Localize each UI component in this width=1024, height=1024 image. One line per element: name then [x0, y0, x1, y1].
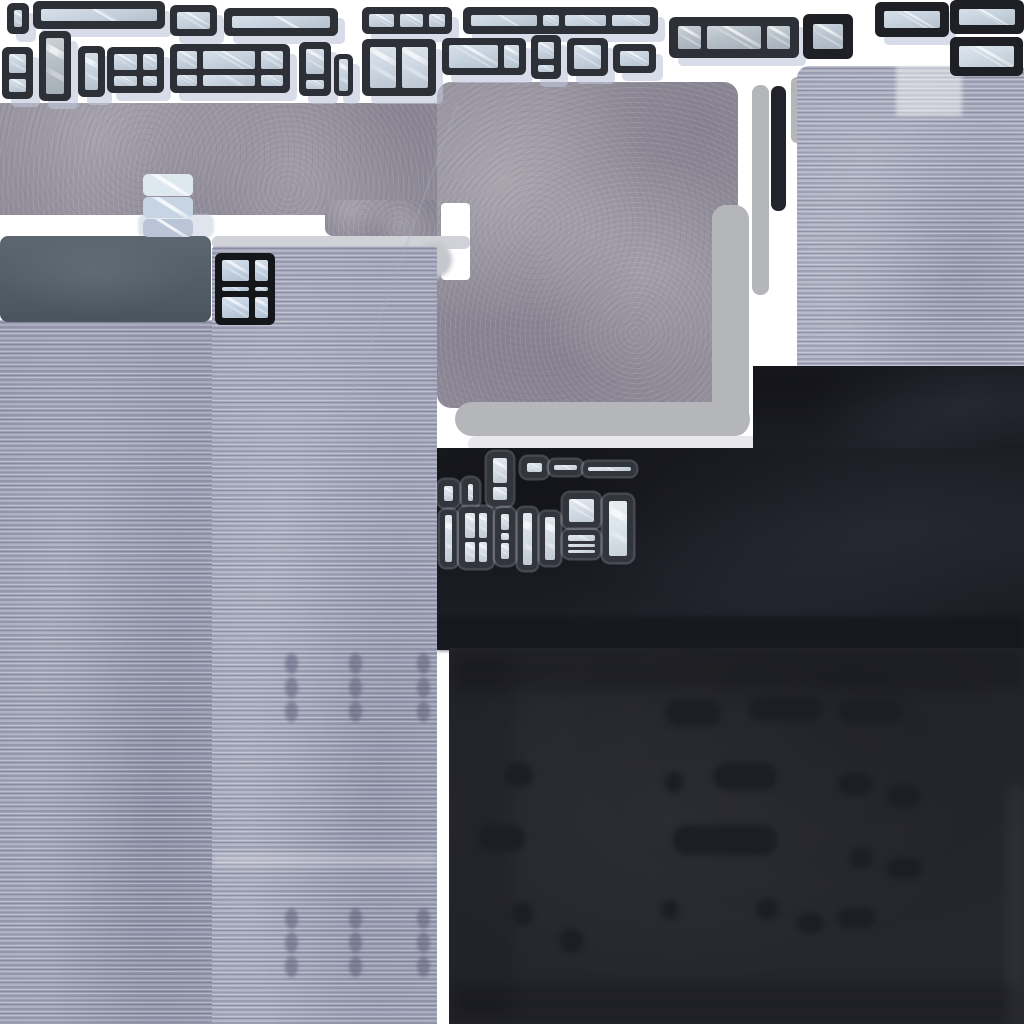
roof-stain-blob	[838, 700, 902, 722]
siding-rivet	[285, 956, 298, 977]
glass-pane	[255, 260, 268, 281]
window-sprite-stacked-2-panes	[306, 49, 324, 89]
glass-pane	[568, 535, 595, 541]
window-sprite-strip-3pane-panes	[369, 14, 445, 27]
window-sprite-wide-2pane-panes	[449, 45, 519, 68]
glass-pane	[306, 49, 324, 74]
glass-pane	[501, 514, 509, 530]
siding-rivet	[285, 701, 298, 722]
window-sprite-wide-2pane	[442, 38, 526, 75]
siding-tower-right	[212, 246, 437, 1024]
window-sprite-grid-3x2-panes	[177, 51, 283, 86]
cluster-window-tall-panes	[609, 501, 627, 556]
glass-pane	[545, 517, 555, 560]
siding-rivet	[417, 653, 430, 674]
cluster-window-strip-a	[549, 460, 582, 475]
cluster-window-strip-b	[583, 462, 636, 476]
roof-shade	[449, 984, 1024, 1024]
siding-rivet	[285, 932, 298, 953]
window-sprite-stacked-3-panes	[538, 42, 554, 72]
chimney-glass-segment	[143, 219, 193, 237]
glass-pane	[527, 463, 542, 472]
glass-pane	[306, 80, 324, 89]
cluster-window-slim-b	[518, 508, 537, 570]
glass-pane	[959, 46, 1014, 67]
roof-texture	[449, 648, 1024, 1024]
glass-pane	[9, 79, 26, 92]
glass-pane	[471, 15, 537, 26]
glass-pane	[402, 47, 428, 88]
siding-highlight-band	[212, 853, 437, 867]
glass-pane	[501, 533, 509, 541]
roof-shade	[1008, 788, 1024, 1024]
window-sprite-black-corner-panes	[959, 9, 1015, 25]
glass-pane	[177, 75, 197, 86]
cluster-window-square-top	[563, 493, 600, 528]
window-sprite-wide	[224, 8, 338, 36]
glass-pane	[177, 12, 210, 29]
window-sprite-square-mid-panes	[574, 45, 601, 69]
glass-pane	[569, 499, 594, 522]
window-sprite-banded	[669, 17, 799, 58]
glass-pane	[41, 9, 157, 21]
siding-rivet	[349, 653, 362, 674]
window-sprite-strip-4pane	[463, 7, 658, 34]
pipe-vertical-thin	[752, 85, 769, 295]
siding-rivet	[285, 908, 298, 929]
rooftop-slate-cap	[0, 236, 211, 322]
cluster-window-tall-split-panes	[493, 458, 507, 500]
cluster-window-triple-stack-panes	[501, 514, 509, 559]
cluster-window-slim-c	[540, 512, 560, 565]
pipe-vertical-wide	[712, 205, 749, 436]
glass-pane	[479, 542, 487, 562]
window-sprite-square-thick-panes	[813, 24, 843, 49]
roof-stain-blob	[797, 913, 823, 933]
window-sprite-black-corner	[950, 0, 1024, 34]
cluster-window-slim-a-panes	[445, 515, 452, 562]
window-sprite-stacked-panes	[9, 54, 26, 92]
window-sprite-black-lower	[950, 37, 1023, 76]
glass-pane	[339, 59, 348, 91]
glass-pane	[620, 51, 649, 66]
glass-pane	[565, 15, 606, 26]
window-sprite-stacked-2	[299, 42, 331, 96]
roof-stain-blob	[478, 825, 525, 851]
cluster-window-square-bottom-panes	[568, 535, 595, 553]
concrete-wall-strip	[0, 103, 437, 215]
glass-pane	[609, 501, 627, 556]
glass-pane	[444, 486, 453, 501]
roof-stain-blob	[673, 825, 777, 855]
glass-pane	[554, 465, 577, 470]
window-sprite-square-thick	[803, 14, 853, 59]
window-sprite-small-wide	[613, 44, 656, 73]
glass-pane	[465, 513, 475, 538]
glass-pane	[493, 487, 507, 500]
glass-pane	[255, 287, 268, 291]
roof-stain-blob	[665, 700, 721, 726]
glass-pane	[177, 51, 197, 69]
glass-pane	[114, 54, 137, 70]
glass-pane	[232, 16, 330, 28]
window-sprite-banded-panes	[678, 26, 790, 49]
siding-rivet	[285, 677, 298, 698]
roof-stain-blob	[838, 908, 875, 928]
glass-pane	[493, 458, 507, 483]
window-sprite-narrow-panes	[85, 53, 98, 90]
siding-tower-left	[0, 320, 212, 1024]
window-sprite-small-wide-panes	[620, 51, 649, 66]
siding-rivet	[349, 701, 362, 722]
window-sprite-square-small	[170, 5, 217, 36]
siding-rivet	[417, 677, 430, 698]
cluster-window-slim-c-panes	[545, 517, 555, 560]
glass-pane	[479, 513, 487, 538]
window-sprite-tiny-panes	[14, 10, 22, 27]
window-sprite-grid-2x2-panes	[114, 54, 157, 86]
glass-chimney	[143, 174, 193, 237]
roof-stain-blob	[850, 848, 873, 868]
glass-pane	[468, 484, 473, 501]
roof-stain-blob	[887, 785, 920, 807]
cluster-window-slim-b-panes	[523, 513, 532, 565]
cluster-window-tiny-b-panes	[468, 484, 473, 501]
cluster-window-tiny-a-panes	[444, 486, 453, 501]
cluster-window-slim-a	[440, 510, 457, 567]
glass-pane	[523, 513, 532, 565]
cluster-window-tiny-a	[438, 480, 459, 507]
antenna-black-bar	[771, 86, 786, 211]
siding-rivet	[417, 908, 430, 929]
glass-pane	[222, 260, 249, 281]
glass-pane	[568, 544, 595, 547]
cluster-window-small	[521, 457, 548, 478]
roof-stain-blob	[838, 773, 872, 795]
tower-window-panes	[222, 260, 268, 318]
window-sprite-double-door	[362, 39, 436, 96]
window-sprite-grid-3x2	[170, 44, 290, 93]
window-sprite-square-small-panes	[177, 12, 210, 29]
window-sprite-black-wide-panes	[884, 11, 940, 28]
glass-pane	[400, 14, 423, 27]
window-sprite-black-lower-panes	[959, 46, 1014, 67]
roof-stain-blob	[887, 858, 922, 878]
siding-rivet	[349, 956, 362, 977]
roof-stain-blob	[665, 772, 683, 793]
glass-pane	[9, 54, 26, 73]
tower-window	[215, 253, 275, 325]
glass-pane	[222, 287, 249, 291]
window-sprite-narrow	[78, 46, 105, 97]
window-sprite-grid-2x2	[107, 47, 164, 93]
roof-stain-blob	[505, 763, 533, 787]
glass-pane	[501, 543, 509, 559]
siding-rivet	[285, 653, 298, 674]
glass-pane	[46, 38, 64, 94]
window-sprite-tall-gray-panes	[46, 38, 64, 94]
glass-pane	[588, 467, 631, 471]
glass-pane	[813, 24, 843, 49]
glass-pane	[449, 45, 498, 68]
glass-pane	[203, 75, 255, 86]
window-sprite-stacked-3	[531, 35, 561, 79]
glass-pane	[222, 297, 249, 318]
chimney-glass-segment	[143, 174, 193, 196]
glass-pane	[255, 297, 268, 318]
window-sprite-strip-3pane	[362, 7, 452, 34]
glass-pane	[707, 26, 762, 49]
cluster-window-square-top-panes	[569, 499, 594, 522]
cluster-window-grid	[459, 507, 493, 568]
cluster-window-strip-a-panes	[554, 465, 577, 470]
cluster-window-strip-b-panes	[588, 467, 631, 471]
window-sprite-long-top-panes	[41, 9, 157, 21]
glass-pane	[465, 542, 475, 562]
window-sprite-tall-gray	[39, 31, 71, 101]
window-sprite-slim	[334, 54, 353, 96]
glass-pane	[203, 51, 255, 69]
glass-pane	[612, 15, 650, 26]
glass-pane	[261, 75, 283, 86]
roof-stain-blob	[512, 902, 533, 925]
cluster-window-tall	[603, 495, 633, 562]
glass-pane	[543, 15, 559, 26]
roof-stain-blob	[748, 697, 822, 721]
window-sprite-double-door-panes	[370, 47, 428, 88]
glass-pane	[429, 14, 445, 27]
chimney-glass-segment	[143, 197, 193, 217]
cluster-window-square-bottom	[563, 530, 600, 558]
glass-pane	[538, 65, 554, 73]
siding-rivet	[349, 908, 362, 929]
glass-pane	[568, 550, 595, 553]
cluster-window-tall-split	[487, 452, 513, 506]
window-sprite-stacked	[2, 47, 33, 99]
window-sprite-black-wide	[875, 2, 949, 37]
window-sprite-long-top	[33, 1, 165, 29]
glass-pane	[114, 76, 137, 86]
window-sprite-tiny	[7, 3, 29, 34]
siding-rivet	[417, 701, 430, 722]
concrete-wall-square	[437, 82, 738, 408]
glass-pane	[678, 26, 701, 49]
glass-pane	[370, 47, 396, 88]
dark-wall-bottom-band	[437, 616, 1024, 650]
roof-stain-blob	[757, 898, 778, 920]
glass-pane	[445, 515, 452, 562]
window-sprite-wide-panes	[232, 16, 330, 28]
pipe-horizontal	[455, 402, 750, 436]
glass-pane	[14, 10, 22, 27]
window-sprite-slim-panes	[339, 59, 348, 91]
glass-pane	[959, 9, 1015, 25]
glass-pane	[143, 76, 157, 86]
cluster-window-triple-stack	[495, 508, 515, 565]
glass-pane	[538, 42, 554, 59]
glass-pane	[884, 11, 940, 28]
cluster-window-tiny-b	[462, 478, 479, 507]
glass-pane	[369, 14, 394, 27]
glass-pane	[504, 45, 519, 68]
window-sprite-strip-4pane-panes	[471, 15, 650, 26]
glass-pane	[85, 53, 98, 90]
siding-rivet	[349, 932, 362, 953]
window-sprite-square-mid	[567, 38, 608, 76]
glass-pane	[574, 45, 601, 69]
roof-shade	[449, 648, 1024, 690]
roof-stain-blob	[662, 900, 678, 920]
cluster-window-small-panes	[527, 463, 542, 472]
siding-rivet	[417, 956, 430, 977]
glass-pane	[767, 26, 790, 49]
siding-rivet	[417, 932, 430, 953]
siding-rivet	[349, 677, 362, 698]
roof-stain-blob	[560, 928, 583, 953]
glass-pane	[143, 54, 157, 70]
cluster-window-grid-panes	[465, 513, 487, 562]
texture-atlas-sheet	[0, 0, 1024, 1024]
roof-stain-blob	[713, 763, 777, 790]
glass-pane	[261, 51, 283, 69]
